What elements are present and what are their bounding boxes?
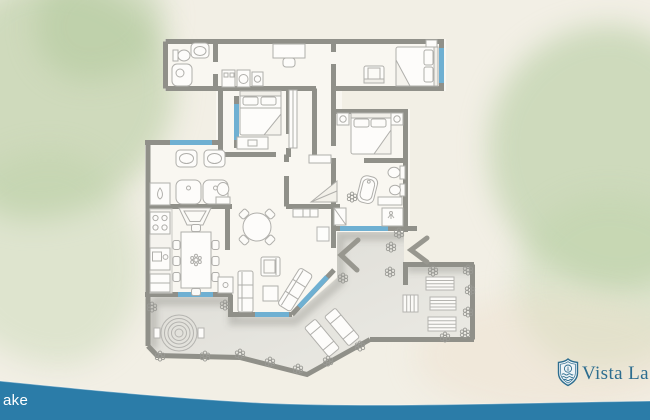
floor-plan-poster: ake Vista La <box>0 0 650 420</box>
shield-sun-waves-icon <box>559 359 578 386</box>
lake-wave <box>0 0 650 420</box>
brand-logo: Vista La <box>556 358 650 388</box>
logo-text: Vista La <box>582 363 649 384</box>
wave-shape <box>0 381 650 420</box>
watermark-text: ake <box>3 392 28 409</box>
